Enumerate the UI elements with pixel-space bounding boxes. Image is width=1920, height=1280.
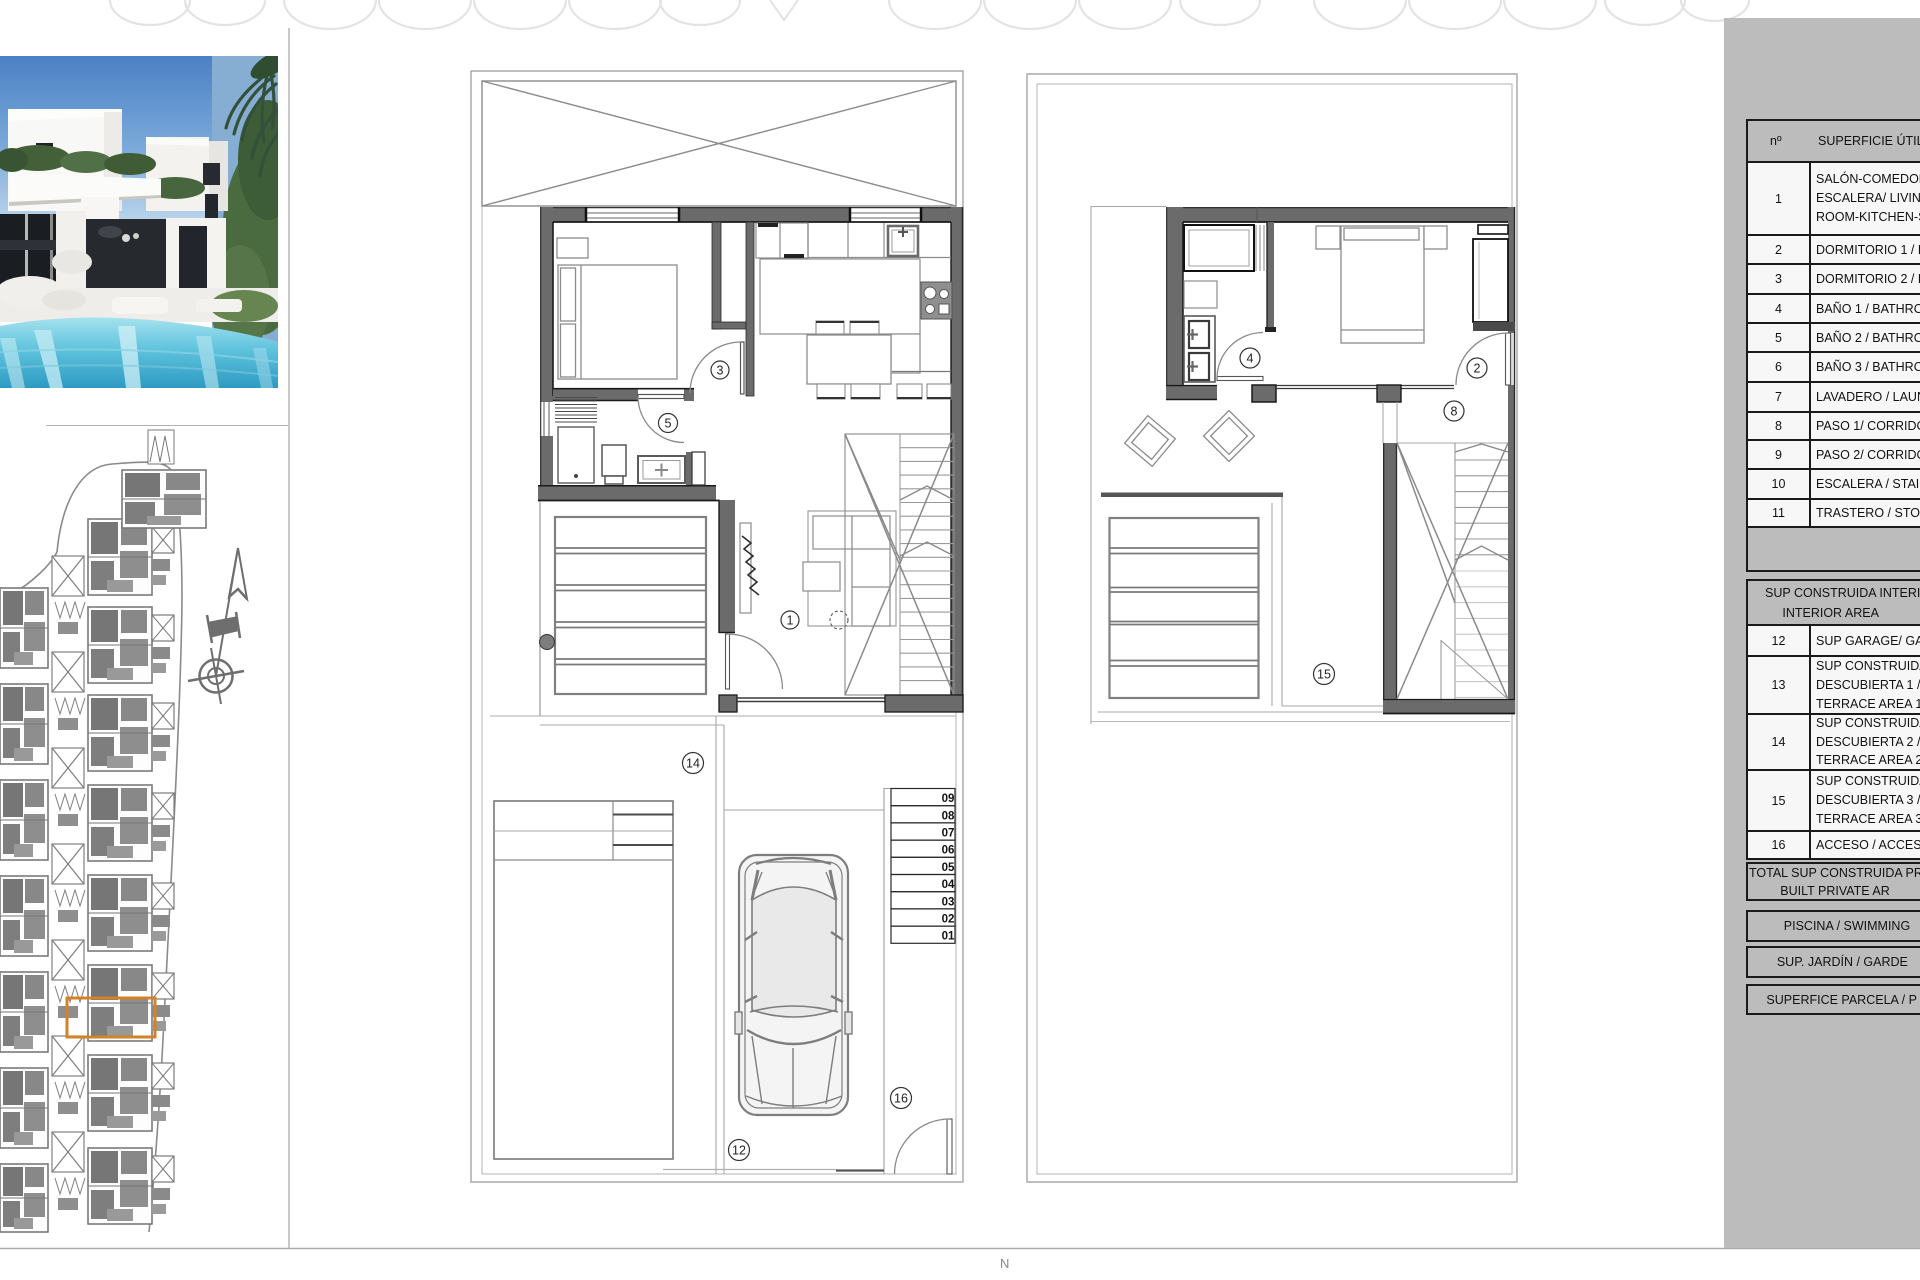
svg-text:03: 03 <box>942 896 955 908</box>
svg-text:05: 05 <box>942 862 955 874</box>
svg-text:14: 14 <box>686 757 700 771</box>
svg-text:09: 09 <box>942 793 955 805</box>
svg-text:5: 5 <box>665 417 672 431</box>
svg-text:08: 08 <box>942 810 955 822</box>
svg-text:N: N <box>1000 1256 1009 1271</box>
svg-text:04: 04 <box>942 879 955 891</box>
svg-text:16: 16 <box>894 1092 908 1106</box>
svg-text:4: 4 <box>1247 352 1254 366</box>
svg-text:12: 12 <box>732 1144 746 1158</box>
svg-text:3: 3 <box>717 364 724 378</box>
svg-text:01: 01 <box>942 931 955 943</box>
svg-text:8: 8 <box>1451 405 1458 419</box>
svg-text:1: 1 <box>787 614 794 628</box>
svg-text:2: 2 <box>1474 362 1481 376</box>
svg-text:02: 02 <box>942 914 955 926</box>
svg-text:06: 06 <box>942 845 955 857</box>
svg-text:07: 07 <box>942 828 955 840</box>
svg-text:15: 15 <box>1317 668 1331 682</box>
